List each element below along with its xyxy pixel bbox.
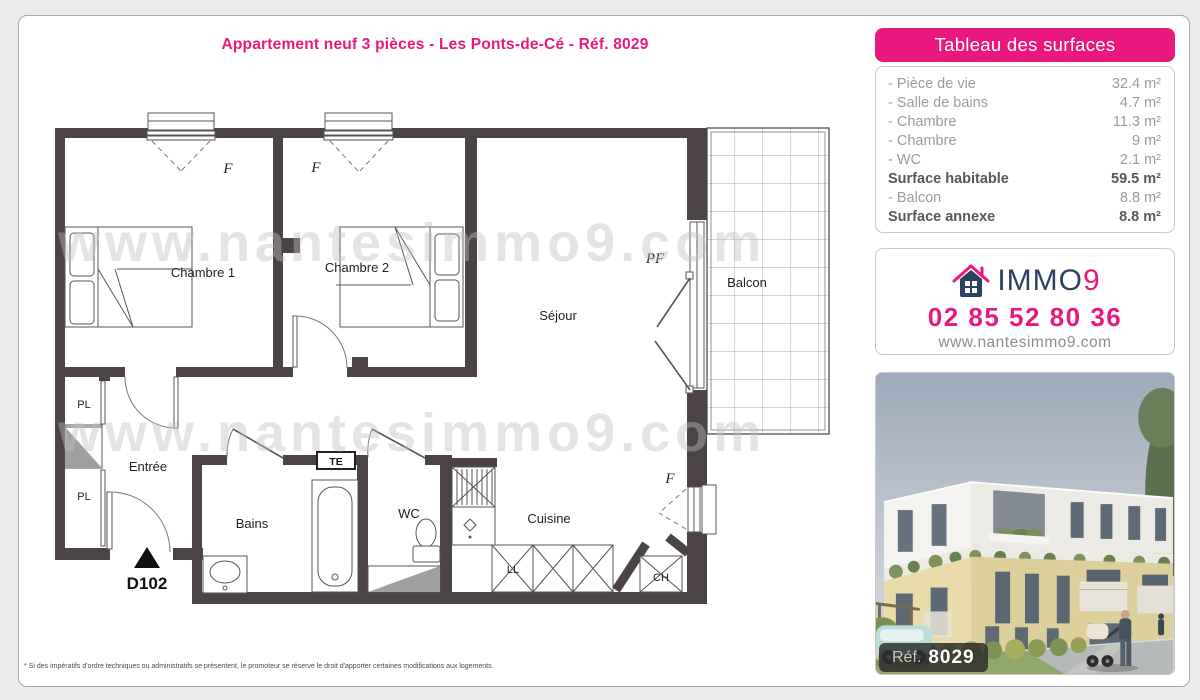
table-row: - Balcon 8.8 m² (888, 189, 1161, 207)
table-row: - Chambre 11.3 m² (888, 113, 1161, 131)
brand-immo: IMMO (997, 264, 1083, 297)
label-window-f1: F (222, 161, 233, 177)
row-label: Surface annexe (888, 208, 995, 226)
brand-9: 9 (1083, 264, 1101, 297)
surfaces-header: Tableau des surfaces (875, 28, 1175, 62)
window-chambre1 (147, 113, 215, 171)
label-placard-1: PL (77, 399, 90, 411)
house-icon (949, 262, 993, 300)
table-row: - Pièce de vie 32.4 m² (888, 75, 1161, 93)
kitchen-units (452, 467, 682, 592)
label-door-number: D102 (127, 574, 168, 593)
label-tableau-electrique: TE (329, 456, 342, 468)
phone-number: 02 85 52 80 36 (876, 302, 1174, 333)
label-lave-linge: LL (507, 564, 519, 576)
table-row: - Salle de bains 4.7 m² (888, 94, 1161, 112)
row-label: Surface habitable (888, 170, 1009, 188)
label-chauffe-eau: CH (653, 572, 669, 584)
label-placard-2: PL (77, 491, 90, 503)
row-value: 32.4 m² (1112, 75, 1161, 93)
page: Chambre 1 Chambre 2 Séjour Balcon Entrée… (0, 0, 1200, 700)
row-label: - Chambre (888, 113, 957, 131)
building-rendering (876, 373, 1174, 674)
label-balcon: Balcon (727, 275, 767, 290)
row-value: 59.5 m² (1111, 170, 1161, 188)
door-window-sejour (655, 222, 704, 393)
door-entrance (107, 492, 170, 568)
website-url: www.nantesimmo9.com (876, 334, 1174, 352)
agency-logo: IMMO9 (876, 262, 1174, 300)
agency-card: IMMO9 02 85 52 80 36 www.nantesimmo9.com (875, 248, 1175, 355)
table-row-total-habitable: Surface habitable 59.5 m² (888, 170, 1161, 188)
row-value: 9 m² (1132, 132, 1161, 150)
label-sejour: Séjour (539, 308, 577, 323)
label-chambre1: Chambre 1 (171, 265, 235, 280)
row-label: - Salle de bains (888, 94, 988, 112)
window-kitchen (659, 485, 716, 534)
row-value: 8.8 m² (1119, 208, 1161, 226)
walls (55, 128, 707, 604)
door-wc (368, 429, 425, 458)
door-bains (227, 429, 283, 458)
toilet (413, 519, 440, 562)
label-entree: Entrée (129, 459, 167, 474)
page-title: Appartement neuf 3 pièces - Les Ponts-de… (40, 36, 830, 54)
row-label: - Balcon (888, 189, 941, 207)
table-row: - WC 2.1 m² (888, 151, 1161, 169)
bathtub (312, 480, 358, 592)
label-chambre2: Chambre 2 (325, 260, 389, 275)
label-cuisine: Cuisine (527, 511, 570, 526)
label-window-f2: F (310, 160, 321, 176)
door-chambre2 (293, 316, 347, 368)
row-label: - Chambre (888, 132, 957, 150)
legal-footnote: * Si des impératifs d'ordre techniques o… (24, 663, 1164, 670)
row-value: 2.1 m² (1120, 151, 1161, 169)
label-window-f3: F (664, 471, 675, 487)
door-chambre1 (125, 377, 178, 428)
floor-plan: Chambre 1 Chambre 2 Séjour Balcon Entrée… (0, 0, 870, 700)
bed-chambre2 (336, 227, 463, 327)
label-bains: Bains (236, 516, 269, 531)
row-value: 4.7 m² (1120, 94, 1161, 112)
background-pedestrian (1158, 613, 1164, 635)
row-label: - Pièce de vie (888, 75, 976, 93)
row-value: 11.3 m² (1113, 113, 1161, 131)
row-label: - WC (888, 151, 921, 169)
label-porte-fenetre: PF (645, 251, 665, 267)
table-row-total-annexe: Surface annexe 8.8 m² (888, 208, 1161, 226)
balcony (707, 128, 829, 434)
sink (203, 556, 247, 593)
table-row: - Chambre 9 m² (888, 132, 1161, 150)
building-photo: Réf. 8029 (875, 372, 1175, 675)
row-value: 8.8 m² (1120, 189, 1161, 207)
label-wc: WC (398, 506, 420, 521)
brand-name: IMMO9 (997, 264, 1100, 298)
window-chambre2 (324, 113, 393, 172)
closets-and-shafts (65, 381, 440, 592)
surfaces-table: - Pièce de vie 32.4 m² - Salle de bains … (875, 66, 1175, 233)
